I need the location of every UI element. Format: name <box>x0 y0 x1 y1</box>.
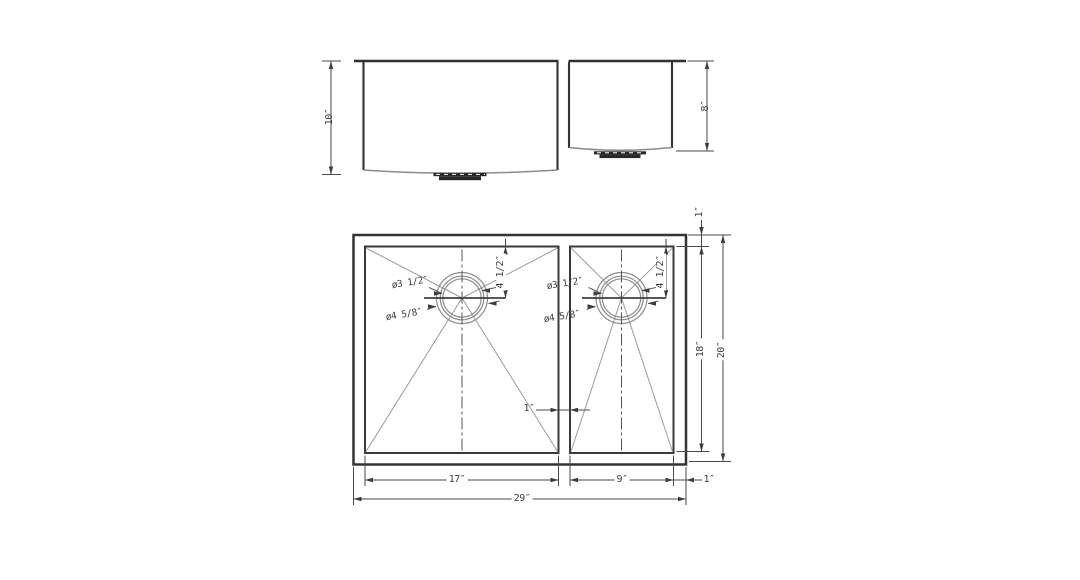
front-right-bowl-walls <box>569 62 672 148</box>
drawing-linework <box>0 0 1080 580</box>
drain-centerlines <box>462 250 622 451</box>
dim-plan-left-bowl-width: 17″ <box>447 475 468 485</box>
dim-left-drain-offset: 4 1/2″ <box>496 253 506 290</box>
dim-plan-overall-depth: 20″ <box>717 340 727 361</box>
dim-plan-top-rim: 1″ <box>695 206 705 217</box>
front-left-bowl-walls <box>364 62 558 170</box>
dim-front-left-depth: 10″ <box>325 109 335 126</box>
front-view <box>322 61 714 180</box>
plan-outer-rim <box>354 235 687 465</box>
front-right-drain <box>594 151 646 158</box>
plan-view <box>354 220 732 505</box>
front-left-bowl-bottom <box>364 170 558 173</box>
dim-plan-right-rim: 1″ <box>703 475 714 485</box>
dim-front-right-depth: 8″ <box>701 100 711 111</box>
dim-plan-inner-depth: 18″ <box>696 339 706 360</box>
dim-plan-right-bowl-width: 9″ <box>614 475 629 485</box>
dim-plan-overall-width: 29″ <box>512 494 533 504</box>
front-left-drain <box>434 173 487 180</box>
sink-technical-drawing: 10″ 8″ 1″ 18″ 20″ 4 1/2″ 4 1/2″ 17″ 9″ 1… <box>0 0 1080 580</box>
dim-plan-divider: 1″ <box>523 404 534 414</box>
front-right-bowl-bottom <box>569 148 672 151</box>
dim-right-drain-offset: 4 1/2″ <box>656 253 666 290</box>
